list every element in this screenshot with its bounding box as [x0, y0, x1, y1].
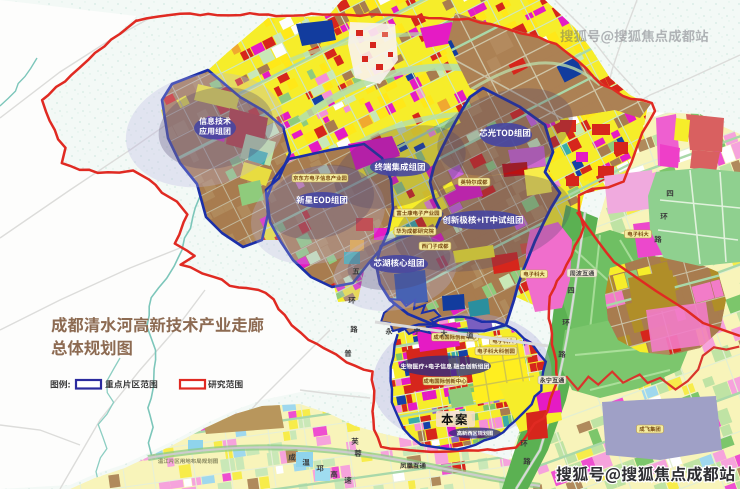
svg-text:周波互通: 周波互通	[570, 269, 596, 278]
svg-text:芯光TOD组团: 芯光TOD组团	[479, 127, 531, 139]
svg-text:五: 五	[352, 266, 360, 277]
svg-text:西门子成都: 西门子成都	[422, 242, 450, 250]
svg-text:电子科大: 电子科大	[627, 230, 649, 238]
svg-text:永宁互通: 永宁互通	[540, 376, 566, 385]
svg-text:路: 路	[523, 456, 531, 467]
svg-text:生物医疗+电子信息 融合创新组团: 生物医疗+电子信息 融合创新组团	[401, 362, 490, 371]
svg-text:环: 环	[520, 438, 528, 449]
svg-text:研究范围: 研究范围	[208, 378, 243, 391]
svg-text:高新西区规划图: 高新西区规划图	[457, 430, 493, 437]
svg-text:应用组团: 应用组团	[199, 126, 231, 137]
svg-text:路: 路	[350, 324, 358, 335]
svg-text:四: 四	[567, 285, 575, 296]
svg-text:重点片区范围: 重点片区范围	[105, 378, 158, 391]
svg-text:搜狐号@搜狐焦点成都站: 搜狐号@搜狐焦点成都站	[556, 461, 735, 485]
svg-text:英特尔成都: 英特尔成都	[461, 178, 489, 186]
svg-text:凤凰互通: 凤凰互通	[400, 460, 427, 470]
svg-text:成都清水河高新技术产业走廊: 成都清水河高新技术产业走廊	[51, 312, 264, 336]
svg-text:本案: 本案	[441, 409, 469, 428]
svg-text:邛: 邛	[316, 463, 324, 474]
svg-text:普: 普	[344, 348, 352, 359]
svg-text:终端集成组团: 终端集成组团	[374, 161, 425, 173]
svg-text:环: 环	[348, 295, 356, 306]
svg-text:路: 路	[558, 349, 566, 360]
svg-text:永: 永	[385, 327, 393, 337]
svg-text:搜狐号@搜狐焦点成都站: 搜狐号@搜狐焦点成都站	[560, 25, 709, 45]
svg-text:温江片区用地布局规划图: 温江片区用地布局规划图	[158, 457, 219, 465]
svg-text:电子科大科创园: 电子科大科创园	[477, 347, 515, 355]
svg-text:新星EOD组团: 新星EOD组团	[296, 194, 348, 206]
svg-text:速: 速	[344, 475, 352, 486]
svg-text:四: 四	[666, 188, 674, 199]
svg-text:温: 温	[302, 457, 310, 468]
svg-text:高: 高	[330, 469, 338, 480]
svg-text:蓉: 蓉	[354, 448, 362, 459]
svg-text:芯湖核心组团: 芯湖核心组团	[373, 257, 424, 269]
svg-text:富士康电子产业园: 富士康电子产业园	[396, 209, 439, 217]
svg-text:总体规划图: 总体规划图	[51, 335, 133, 359]
svg-text:宁: 宁	[413, 327, 420, 337]
svg-text:芙: 芙	[351, 436, 359, 447]
svg-text:路: 路	[654, 234, 662, 245]
svg-text:华为成都研究院: 华为成都研究院	[396, 227, 434, 235]
svg-text:环: 环	[660, 211, 668, 222]
svg-text:图例:: 图例:	[50, 378, 71, 391]
svg-text:创新极核+IT中试组团: 创新极核+IT中试组团	[442, 214, 523, 226]
svg-text:大: 大	[440, 329, 447, 339]
svg-text:环: 环	[562, 317, 570, 328]
svg-text:成: 成	[288, 452, 296, 463]
svg-text:成飞集团: 成飞集团	[639, 425, 661, 433]
svg-text:成电国际创新中心: 成电国际创新中心	[423, 377, 467, 385]
svg-text:京东方电子信息产业园: 京东方电子信息产业园	[293, 174, 347, 182]
svg-text:电子科大: 电子科大	[523, 270, 545, 278]
svg-text:道: 道	[466, 331, 473, 341]
